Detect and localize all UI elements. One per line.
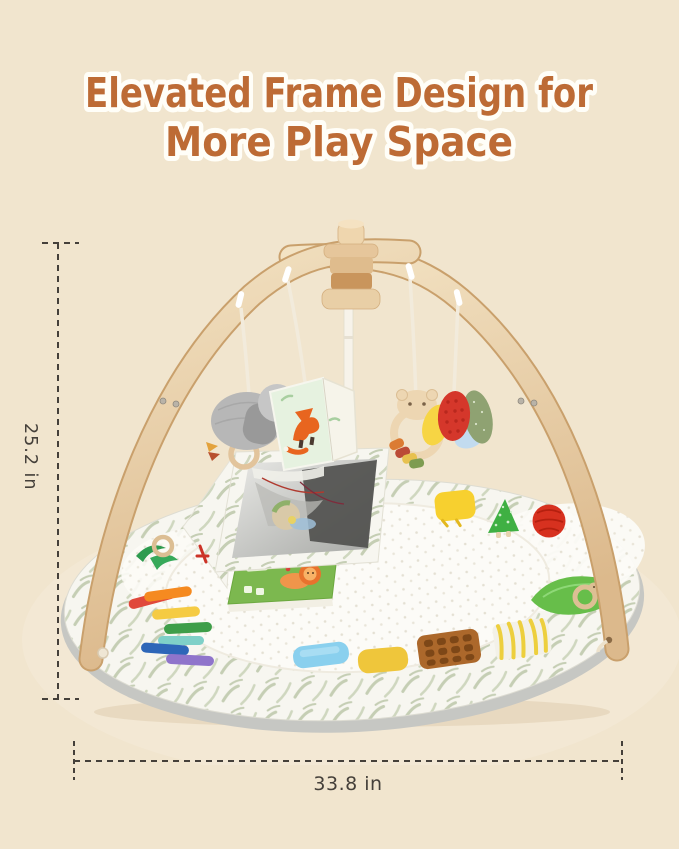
height-dimension-tick-top	[42, 242, 79, 244]
fox-cloth-book	[270, 378, 357, 470]
product-marketing-image: Elevated Frame Design for More Play Spac…	[0, 0, 679, 849]
height-dimension-label: 25.2 in	[20, 423, 40, 490]
width-dimension-line	[74, 760, 622, 762]
red-knit-ball	[533, 505, 566, 538]
height-dimension-line	[57, 243, 59, 699]
headline-line2: More Play Space	[165, 118, 513, 166]
headline-line1: Elevated Frame Design for	[85, 69, 594, 117]
wood-hub-knob	[322, 220, 380, 310]
play-gym-photo	[0, 195, 679, 765]
headline: Elevated Frame Design for More Play Spac…	[0, 0, 679, 180]
height-dimension-tick-bottom	[42, 698, 79, 700]
width-dimension-label: 33.8 in	[74, 773, 622, 795]
